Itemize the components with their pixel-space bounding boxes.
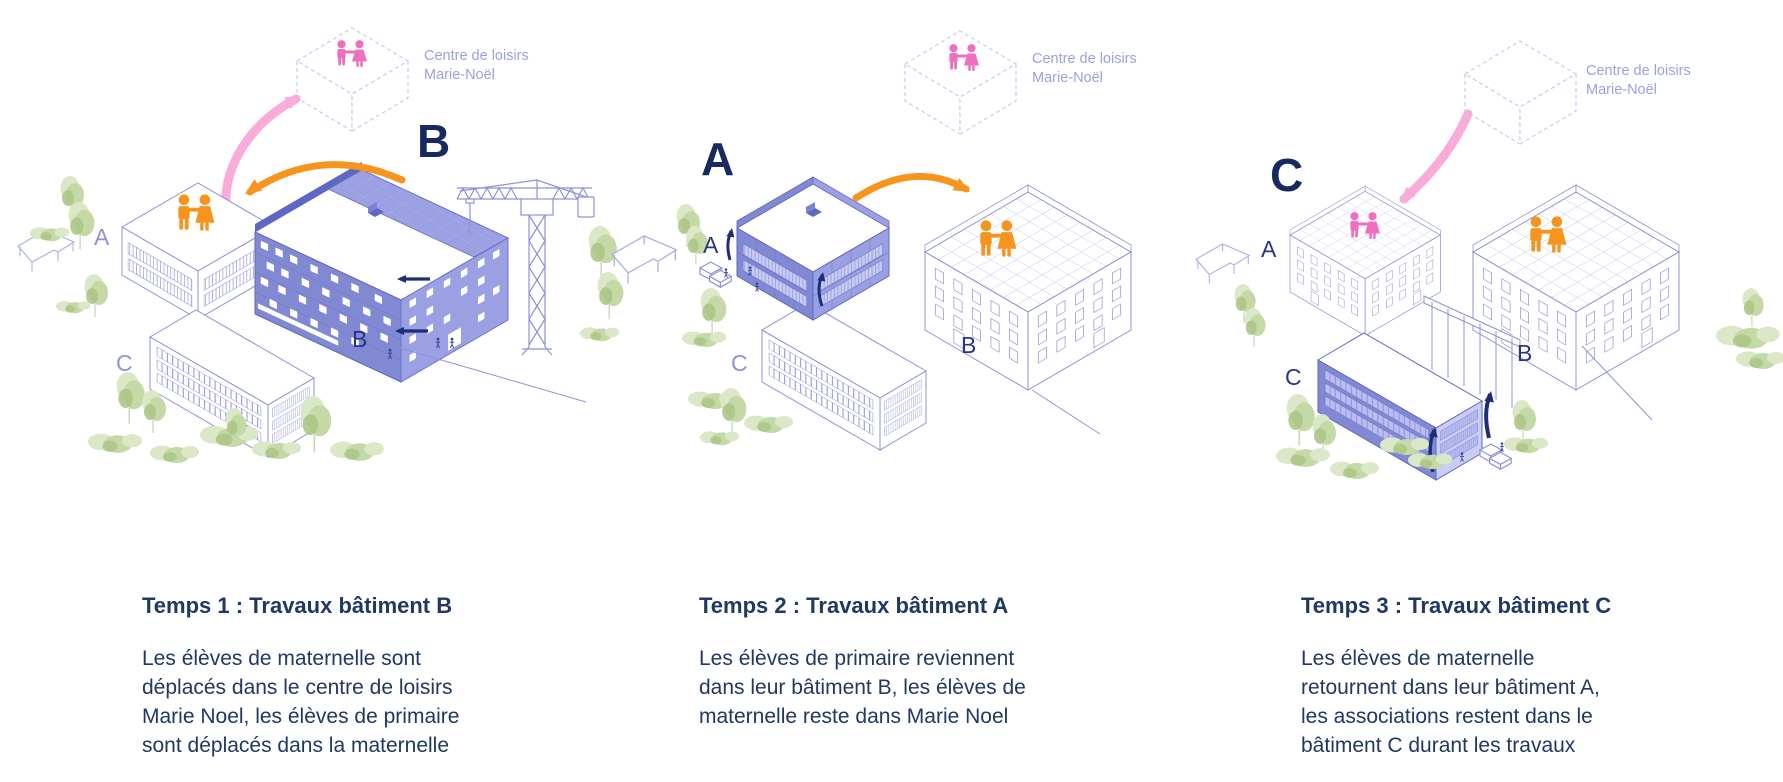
building-label-a: A [703, 234, 718, 257]
center-label: Centre de loisirs Marie-Noël [1586, 62, 1691, 100]
building-a-outline [122, 183, 274, 319]
building-label-b: B [352, 328, 367, 351]
tree-icon [117, 372, 145, 424]
center-label-line2: Marie-Noël [1032, 69, 1137, 88]
center-label: Centre de loisirs Marie-Noël [424, 47, 529, 85]
bush-icon [88, 434, 142, 453]
phase-body-line: déplacés dans le centre de loisirs [142, 673, 562, 702]
phase-3-diagram [1196, 41, 1783, 480]
bush-icon [150, 446, 199, 464]
phase-2-diagram [612, 31, 1131, 450]
tree-icon [1244, 308, 1265, 347]
phase-body-line: dans leur bâtiment B, les élèves de [699, 673, 1119, 702]
bush-icon [1736, 352, 1783, 370]
bush-icon [1504, 437, 1548, 453]
tree-icon [598, 272, 624, 319]
center-label-line1: Centre de loisirs [1032, 50, 1137, 69]
building-c-outline [762, 303, 926, 450]
center-loisirs-cube [905, 31, 1016, 134]
phase-body-line: bâtiment C durant les travaux [1301, 731, 1721, 760]
tree-icon [301, 396, 332, 452]
tree-icon [589, 226, 617, 278]
move-to-center-arrow [226, 99, 296, 212]
center-label-line2: Marie-Noël [1586, 81, 1691, 100]
tree-icon [1742, 288, 1763, 327]
building-b-filled [255, 162, 508, 382]
building-label-c: C [1285, 366, 1302, 389]
building-c-filled [1318, 333, 1482, 480]
phase-body-line: les associations restent dans le [1301, 702, 1721, 731]
center-label-line1: Centre de loisirs [424, 47, 529, 66]
tree-icon [1287, 394, 1315, 446]
phase-title: Temps 1 : Travaux bâtiment B [142, 592, 562, 620]
phase-letter: A [701, 136, 734, 182]
bush-icon [1716, 326, 1780, 349]
tree-icon [701, 288, 727, 335]
phase-3-caption: Temps 3 : Travaux bâtiment C Les élèves … [1301, 592, 1721, 760]
bush-icon [56, 301, 90, 313]
building-label-b: B [1517, 342, 1532, 365]
building-a-outline [1290, 186, 1440, 336]
center-label: Centre de loisirs Marie-Noël [1032, 50, 1137, 88]
building-b-outline [925, 185, 1131, 390]
ground-line [1032, 390, 1100, 434]
tree-icon [1513, 400, 1537, 443]
bush-icon [580, 327, 619, 341]
return-maternelle-arrow [1404, 114, 1468, 199]
bush-icon [330, 442, 384, 461]
phase-1-caption: Temps 1 : Travaux bâtiment B Les élèves … [142, 592, 562, 760]
phase-title: Temps 3 : Travaux bâtiment C [1301, 592, 1721, 620]
center-loisirs-cube [1465, 41, 1576, 144]
phase-body-line: Les élèves de maternelle [1301, 644, 1721, 673]
bush-icon [682, 331, 726, 347]
building-label-c: C [116, 352, 133, 375]
phase-body-line: Les élèves de primaire reviennent [699, 644, 1119, 673]
bush-icon [1276, 448, 1330, 467]
bush-icon [252, 442, 301, 460]
center-label-line1: Centre de loisirs [1586, 62, 1691, 81]
building-label-a: A [94, 226, 109, 249]
center-loisirs-cube [297, 28, 408, 131]
building-label-c: C [731, 352, 748, 375]
bench-icon [1196, 244, 1249, 283]
building-label-b: B [961, 334, 976, 357]
tree-icon [721, 388, 747, 435]
bush-icon [744, 416, 793, 434]
phase-2-caption: Temps 2 : Travaux bâtiment A Les élèves … [699, 592, 1119, 731]
bench-icon [612, 236, 676, 283]
building-b-outline [1473, 185, 1679, 390]
phase-body-line: sont déplacés dans la maternelle [142, 731, 562, 760]
phase-title: Temps 2 : Travaux bâtiment A [699, 592, 1119, 620]
ground-line [400, 348, 586, 402]
bush-icon [1330, 462, 1379, 480]
bush-icon [700, 431, 739, 445]
arrowhead [726, 227, 735, 237]
return-primaire-arrow [856, 176, 966, 198]
center-label-line2: Marie-Noël [424, 66, 529, 85]
building-label-a: A [1261, 238, 1276, 261]
phase-body-line: retournent dans leur bâtiment A, [1301, 673, 1721, 702]
phase-body-line: Les élèves de maternelle sont [142, 644, 562, 673]
phase-letter: B [417, 118, 450, 164]
tree-icon [85, 274, 109, 317]
phase-body-line: maternelle reste dans Marie Noel [699, 702, 1119, 731]
arrowhead [1484, 390, 1495, 402]
slide: Centre de loisirs Marie-Noël Centre de l… [0, 0, 1783, 782]
phase-letter: C [1270, 152, 1303, 198]
phase-body-line: Marie Noel, les élèves de primaire [142, 702, 562, 731]
